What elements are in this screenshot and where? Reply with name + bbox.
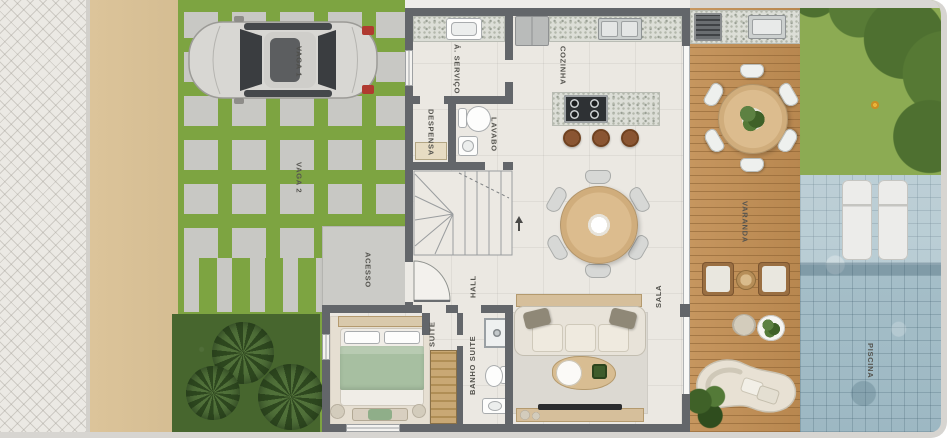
label-piscina: PISCINA — [864, 338, 877, 384]
dining-chair — [585, 264, 611, 278]
wall-segment — [322, 305, 330, 432]
bar-stool — [592, 129, 610, 147]
deck-armchair — [758, 262, 790, 296]
sun-lounger — [878, 180, 908, 260]
pouf — [732, 314, 756, 336]
wall-segment — [413, 162, 485, 170]
laundry-tank-icon — [446, 18, 482, 40]
floor-plan: VAGA 1 VAGA 2 ACESSO Á. SERVIÇO DESPENSA… — [0, 0, 947, 438]
wall-segment — [448, 104, 456, 162]
wall-segment — [413, 96, 420, 104]
rear-garden — [800, 0, 941, 175]
deck-side-table — [736, 270, 756, 290]
palm-plant-icon — [186, 366, 240, 420]
wall-segment — [330, 305, 422, 313]
label-banho-suite: BANHO SUITE — [462, 334, 484, 396]
deck-sink-icon — [748, 15, 786, 39]
wardrobe — [430, 350, 457, 424]
entry-door-icon — [413, 260, 451, 302]
top-margin — [405, 0, 690, 8]
bar-stool — [621, 129, 639, 147]
sliding-glass-door — [683, 46, 690, 394]
label-cozinha: COZINHA — [556, 44, 570, 88]
wall-segment — [505, 16, 513, 60]
label-hall: HALL — [466, 270, 480, 304]
dining-table — [560, 186, 638, 264]
veranda-chair — [740, 64, 764, 78]
decor-vase — [520, 410, 530, 420]
pool-step-shadow — [800, 263, 941, 275]
suite-pouf — [330, 404, 345, 419]
suite-toilet-bowl-icon — [485, 365, 503, 387]
flower-icon — [870, 100, 880, 110]
suite-pouf — [412, 404, 426, 418]
bed-pillow — [384, 331, 420, 344]
bed-pillow — [344, 331, 380, 344]
bar-stool — [563, 129, 581, 147]
sun-lounger — [842, 180, 872, 260]
sofa — [514, 306, 646, 356]
wall-segment — [503, 162, 513, 170]
wall-segment — [505, 313, 513, 424]
grill-icon — [694, 13, 722, 41]
label-vaga1: VAGA 1 — [292, 36, 306, 88]
centerpiece-plant-icon — [738, 104, 766, 132]
label-suite: SUITE — [426, 318, 438, 350]
staircase-icon — [413, 170, 513, 256]
label-despensa: DESPENSA — [424, 106, 438, 158]
coffee-table — [552, 356, 616, 390]
wall-post — [680, 304, 690, 317]
veranda-chair — [740, 158, 764, 172]
stairs-direction-stem — [518, 222, 520, 231]
wall-segment — [457, 313, 463, 335]
sidewalk-pavement — [0, 0, 86, 432]
label-lavabo: LAVABO — [488, 110, 500, 158]
dining-chair — [585, 170, 611, 184]
wall-segment — [405, 8, 690, 16]
bench-pillow — [368, 409, 392, 420]
window — [346, 424, 400, 432]
headboard — [338, 316, 426, 327]
wall-segment — [682, 8, 690, 46]
decor-vase — [532, 412, 540, 420]
label-area-servico: Á. SERVIÇO — [450, 42, 464, 96]
label-varanda: VARANDA — [738, 198, 752, 246]
sand-strip — [90, 0, 178, 432]
pot-plant-icon — [761, 318, 781, 338]
label-sala: SALA — [652, 280, 665, 312]
cooktop-icon — [564, 95, 608, 123]
car-icon — [186, 14, 380, 106]
top-frame — [690, 0, 941, 8]
wall-segment — [481, 305, 513, 313]
deck-plant-icon — [686, 382, 730, 430]
window — [405, 50, 413, 86]
wall-segment — [682, 394, 690, 432]
bed-duvet — [340, 346, 424, 390]
lavabo-sink-icon — [458, 136, 478, 156]
wall-segment — [444, 96, 513, 104]
kitchen-sink-icon — [598, 18, 642, 40]
palm-plant-icon — [258, 364, 324, 430]
tv-icon — [538, 404, 622, 410]
fridge-icon — [515, 16, 549, 46]
window — [322, 334, 330, 360]
deck-armchair — [702, 262, 734, 296]
label-acesso: ACESSO — [361, 244, 375, 296]
label-vaga2: VAGA 2 — [292, 152, 306, 204]
wall-segment — [446, 305, 458, 313]
